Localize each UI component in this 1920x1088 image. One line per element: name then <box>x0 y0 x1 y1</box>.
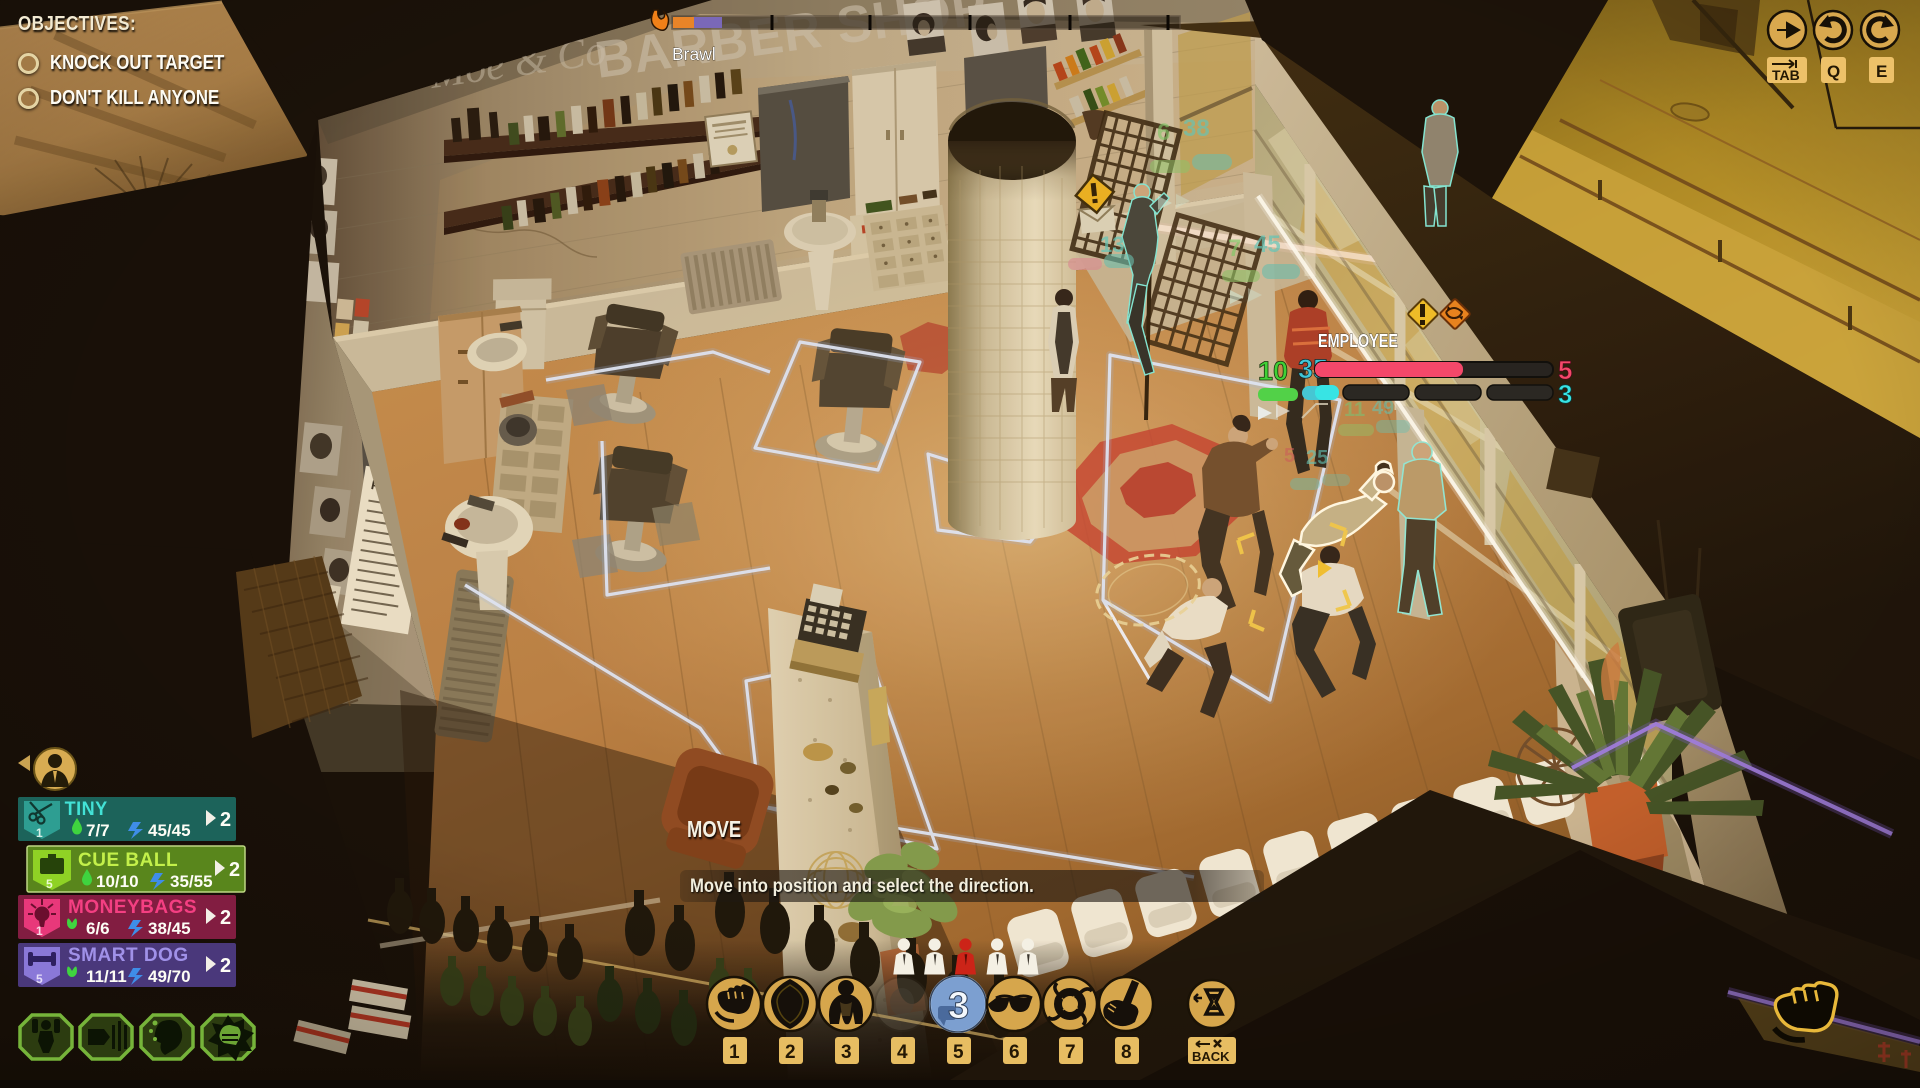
svg-text:10/10: 10/10 <box>96 872 139 891</box>
svg-text:45/45: 45/45 <box>148 821 191 840</box>
svg-text:1: 1 <box>36 826 43 840</box>
svg-text:TINY: TINY <box>65 798 108 820</box>
svg-text:8: 8 <box>1121 1042 1132 1063</box>
svg-text:38/45: 38/45 <box>148 919 191 938</box>
svg-text:5: 5 <box>36 972 43 986</box>
svg-text:2: 2 <box>220 809 231 831</box>
svg-text:35/55: 35/55 <box>170 872 213 891</box>
svg-text:2: 2 <box>220 907 231 929</box>
svg-text:Q: Q <box>1827 62 1840 81</box>
svg-text:2: 2 <box>220 955 231 977</box>
svg-text:SMART DOG: SMART DOG <box>68 945 189 966</box>
svg-text:MONEYBAGS: MONEYBAGS <box>68 897 197 918</box>
svg-text:5: 5 <box>953 1042 964 1063</box>
svg-text:BACK: BACK <box>1192 1049 1230 1064</box>
svg-text:EMPLOYEE: EMPLOYEE <box>1318 331 1398 351</box>
svg-text:TAB: TAB <box>1772 67 1800 83</box>
svg-text:6/6: 6/6 <box>86 919 110 938</box>
svg-text:6: 6 <box>1009 1042 1020 1063</box>
svg-text:1: 1 <box>36 924 43 938</box>
svg-text:3: 3 <box>841 1042 852 1063</box>
svg-text:3: 3 <box>1558 379 1572 409</box>
svg-text:11/11: 11/11 <box>86 967 127 986</box>
svg-text:3: 3 <box>948 985 969 1027</box>
svg-text:1: 1 <box>729 1042 740 1063</box>
svg-text:Brawl: Brawl <box>672 44 716 64</box>
svg-text:4: 4 <box>897 1042 908 1063</box>
svg-text:CUE BALL: CUE BALL <box>78 850 178 871</box>
svg-text:E: E <box>1876 62 1887 81</box>
svg-text:49/70: 49/70 <box>148 967 191 986</box>
svg-text:5: 5 <box>46 877 53 891</box>
svg-text:2: 2 <box>229 859 240 881</box>
svg-text:2: 2 <box>785 1042 796 1063</box>
svg-text:7: 7 <box>1065 1042 1076 1063</box>
svg-text:7/7: 7/7 <box>86 821 110 840</box>
